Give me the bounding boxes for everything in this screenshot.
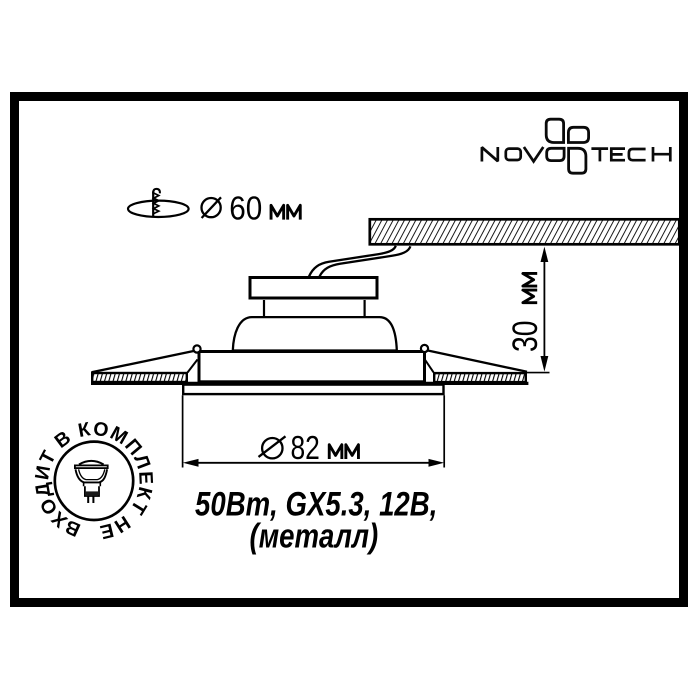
svg-text:60: 60 [229,190,262,227]
svg-text:82: 82 [291,430,320,466]
svg-text:30: 30 [505,320,545,352]
svg-text:(меmалл): (меmалл) [250,517,379,556]
